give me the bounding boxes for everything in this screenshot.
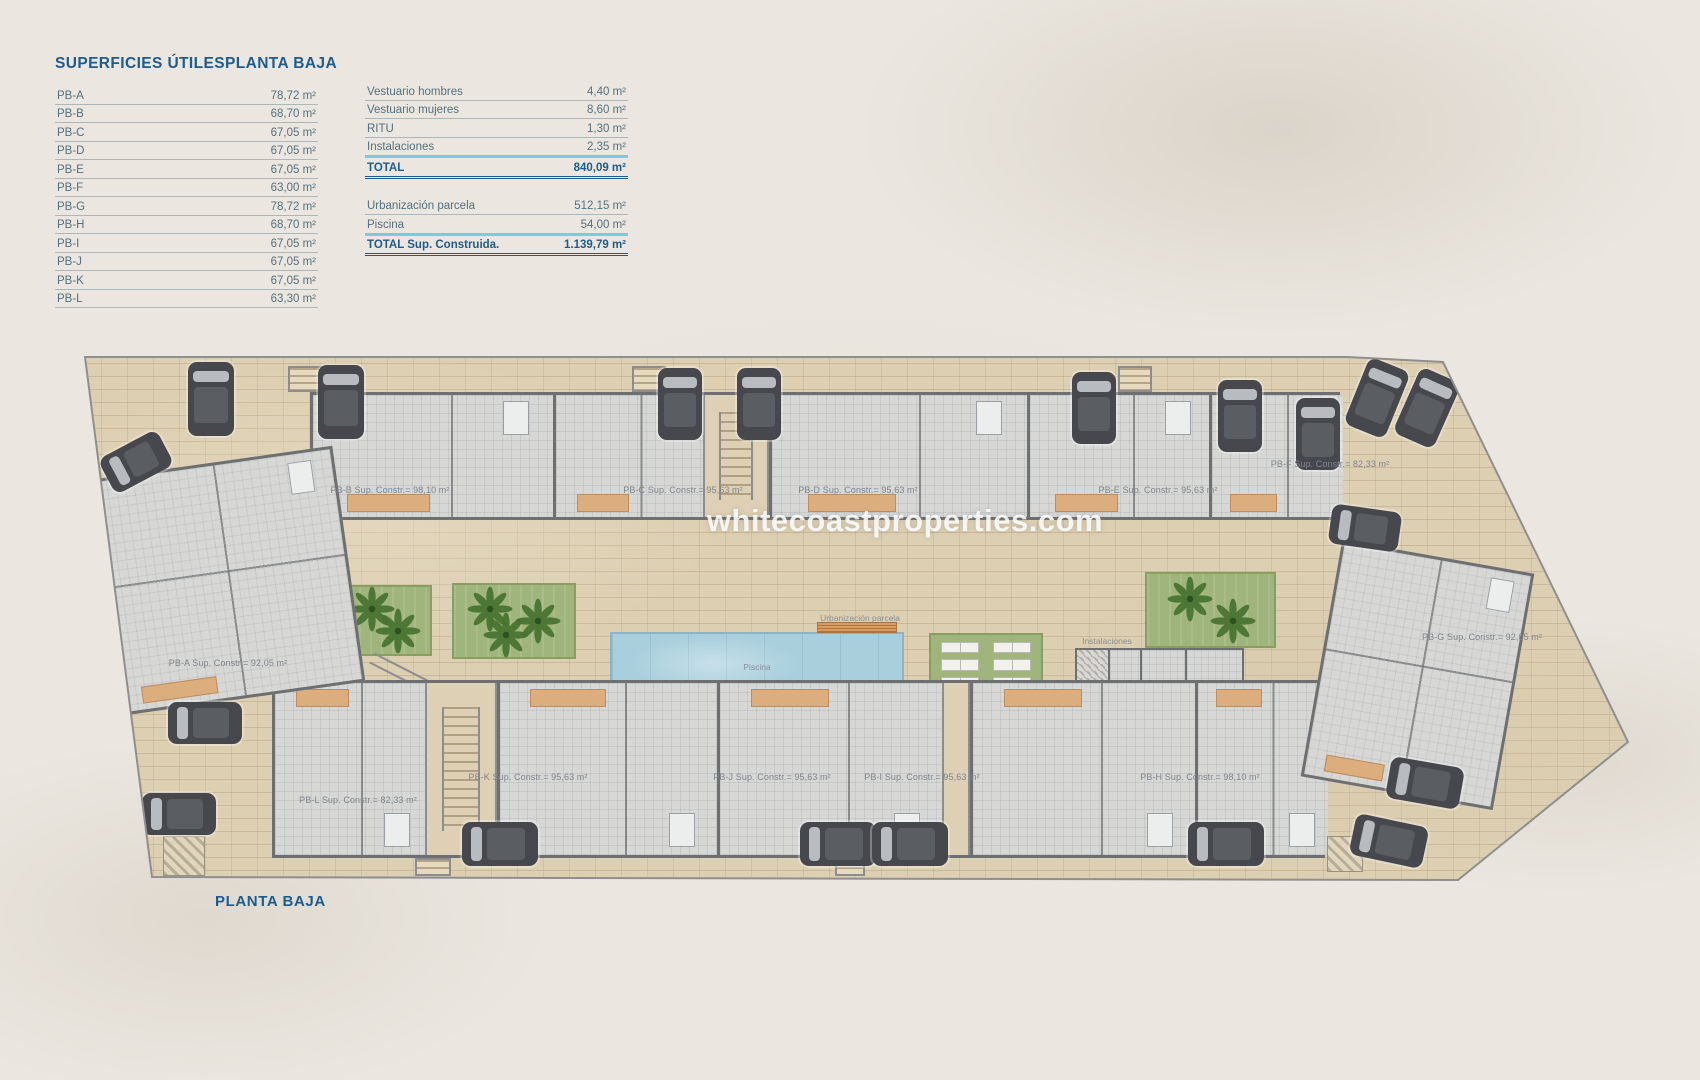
entry-stairs: [1118, 366, 1152, 392]
unit-label-pb-f: PB-F Sup. Constr.= 82,33 m²: [1271, 459, 1390, 469]
plan-title: PLANTA BAJA: [215, 893, 326, 910]
pergola-bench: [817, 622, 897, 633]
utility-pad: [163, 836, 205, 876]
built-surfaces-table: Vestuario hombres4,40 m² Vestuario mujer…: [365, 82, 628, 256]
car-icon: [462, 822, 538, 866]
left-table-title: SUPERFICIES ÚTILES: [55, 55, 225, 73]
sun-lounger: [941, 659, 979, 670]
apartment-block-north: [310, 392, 1340, 520]
apartment-block-south: [272, 680, 1325, 858]
urbanization-label: Urbanización parcela: [820, 613, 900, 623]
table-row: Vestuario hombres4,40 m²: [365, 82, 628, 101]
car-icon: [800, 822, 876, 866]
unit-label-pb-a: PB-A Sup. Constr.= 92,05 m²: [169, 658, 288, 668]
unit-label-pb-e: PB-E Sup. Constr.= 95,63 m²: [1098, 485, 1217, 495]
unit-label-pb-c: PB-C Sup. Constr.= 95,63 m²: [623, 485, 743, 495]
table-row: PB-L63,30 m²: [55, 290, 318, 309]
table-row: PB-I67,05 m²: [55, 234, 318, 253]
table-row: Instalaciones2,35 m²: [365, 138, 628, 157]
table-row: Urbanización parcela512,15 m²: [365, 197, 628, 216]
palm-tree-icon: [1210, 598, 1256, 644]
table-row: Vestuario mujeres8,60 m²: [365, 101, 628, 120]
left-table-subtitle: PLANTA BAJA: [225, 55, 337, 73]
useful-surfaces-table: PB-A78,72 m² PB-B68,70 m² PB-C67,05 m² P…: [55, 86, 318, 308]
table-row: PB-F63,00 m²: [55, 179, 318, 198]
table-row: PB-K67,05 m²: [55, 271, 318, 290]
table-row: PB-H68,70 m²: [55, 216, 318, 235]
unit-label-pb-b: PB-B Sup. Constr.= 98,10 m²: [330, 485, 449, 495]
car-icon: [142, 793, 216, 835]
car-icon: [1072, 372, 1116, 444]
unit-label-pb-d: PB-D Sup. Constr.= 95,63 m²: [798, 485, 918, 495]
sun-lounger: [993, 642, 1031, 653]
pool-label: Piscina: [743, 662, 770, 672]
unit-pb-l: [275, 683, 425, 855]
sun-lounger: [993, 659, 1031, 670]
unit-label-pb-g: PB-G Sup. Constr.= 92,05 m²: [1422, 632, 1542, 642]
table-gap: [365, 179, 628, 197]
watermark: whitecoastproperties.com: [707, 503, 1103, 539]
car-icon: [168, 702, 242, 744]
unit-pb-d: [769, 395, 1027, 517]
entry-stairs: [415, 858, 451, 876]
table-row: PB-D67,05 m²: [55, 142, 318, 161]
unit-label-pb-h: PB-H Sup. Constr.= 98,10 m²: [1140, 772, 1260, 782]
total-built-row: TOTAL Sup. Construida.1.139,79 m²: [365, 234, 628, 257]
table-row: RITU1,30 m²: [365, 119, 628, 138]
car-icon: [658, 368, 702, 440]
table-row: PB-J67,05 m²: [55, 253, 318, 272]
sun-lounger: [941, 642, 979, 653]
table-row: PB-G78,72 m²: [55, 197, 318, 216]
palm-tree-icon: [1167, 576, 1213, 622]
table-row: PB-C67,05 m²: [55, 123, 318, 142]
car-icon: [872, 822, 948, 866]
unit-label-pb-i: PB-I Sup. Constr.= 95,63 m²: [864, 772, 980, 782]
car-icon: [1218, 380, 1262, 452]
total-row: TOTAL840,09 m²: [365, 156, 628, 179]
unit-pb-i: [970, 683, 1195, 855]
car-icon: [1188, 822, 1264, 866]
table-row: PB-E67,05 m²: [55, 160, 318, 179]
palm-tree-icon: [375, 608, 421, 654]
car-icon: [188, 362, 234, 436]
unit-pb-e: [1027, 395, 1209, 517]
plan-sheet: SUPERFICIES ÚTILES PLANTA BAJA PB-A78,72…: [0, 0, 1700, 1080]
palm-tree-icon: [483, 612, 529, 658]
table-row: PB-B68,70 m²: [55, 105, 318, 124]
car-icon: [1328, 503, 1403, 552]
table-row: Piscina54,00 m²: [365, 215, 628, 234]
table-row: PB-A78,72 m²: [55, 86, 318, 105]
unit-label-pb-j: PB-J Sup. Constr.= 95,63 m²: [713, 772, 831, 782]
unit-label-pb-l: PB-L Sup. Constr.= 82,33 m²: [299, 795, 417, 805]
floor-plan: Piscina Ritu V.Hombres V.Mujeres: [75, 350, 1631, 882]
services-label: Instalaciones: [1082, 636, 1132, 646]
car-icon: [318, 365, 364, 439]
unit-label-pb-k: PB-K Sup. Constr.= 95,63 m²: [468, 772, 587, 782]
car-icon: [737, 368, 781, 440]
